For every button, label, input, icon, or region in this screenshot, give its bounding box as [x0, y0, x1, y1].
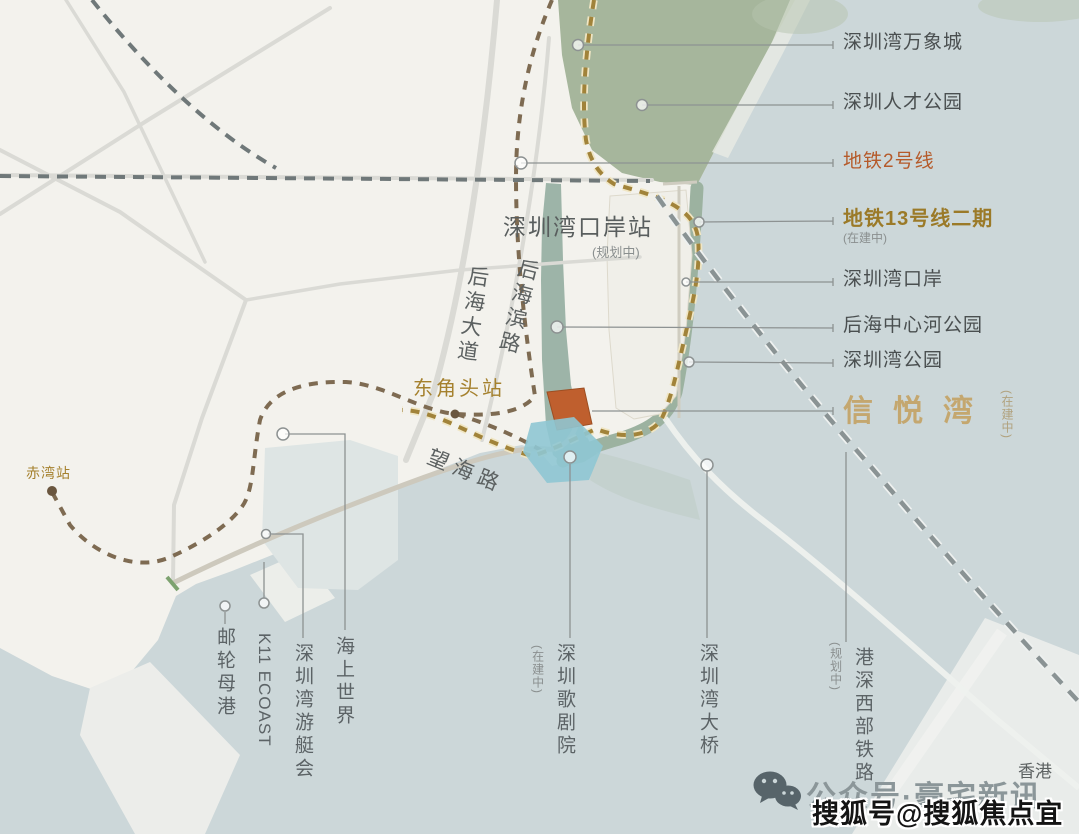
callout-opera-house-note: (在建中)	[531, 645, 544, 694]
callout-cruise-home-port: 邮轮母港	[214, 627, 234, 719]
project-name-label: 信悦湾	[843, 396, 993, 428]
callout-talent-park: 深圳人才公园	[843, 93, 963, 113]
callout-k11-ecoast: K11 ECOAST	[255, 633, 273, 747]
callout-shenzhen-bay-port: 深圳湾口岸	[843, 270, 943, 290]
shenzhen-bay-port-station-note: (规划中)	[592, 246, 640, 260]
project-status-label: (在建中)	[999, 390, 1016, 439]
wechat-icon	[750, 768, 804, 819]
callout-sea-world: 海上世界	[333, 636, 353, 728]
callout-bay-bridge: 深圳湾大桥	[697, 643, 717, 758]
callout-houhai-river-park: 后海中心河公园	[843, 316, 983, 336]
callout-metro-line-13-phase2: 地铁13号线二期(在建中)	[843, 209, 993, 245]
callout-metro-line-13-phase2-note: (在建中)	[843, 232, 993, 245]
callout-metro-line-2: 地铁2号线	[843, 152, 935, 172]
callout-shenzhen-bay-park: 深圳湾公园	[843, 351, 943, 371]
chiwan-station-label: 赤湾站	[26, 466, 71, 481]
dongjiaotou-station-label: 东角头站	[413, 379, 505, 400]
sohu-watermark: 搜狐号@搜狐焦点宜春站	[812, 792, 1079, 834]
callout-yacht-club: 深圳湾游艇会	[292, 643, 312, 781]
callout-shenzhen-bay-mixc: 深圳湾万象城	[843, 33, 963, 53]
callout-west-rail: 港深西部铁路	[852, 647, 872, 785]
shenzhen-bay-port-station-label: 深圳湾口岸站	[503, 215, 653, 239]
dongjiaotou-station-dot	[451, 410, 460, 419]
callout-west-rail-note: (规划中)	[829, 642, 842, 691]
location-map: 深圳湾口岸站(规划中)后海大道后海滨路东角头站望海路赤湾站香港深圳湾万象城深圳人…	[0, 0, 1079, 834]
chiwan-station-dot	[47, 486, 57, 496]
callout-opera-house: 深圳歌剧院	[554, 643, 574, 758]
